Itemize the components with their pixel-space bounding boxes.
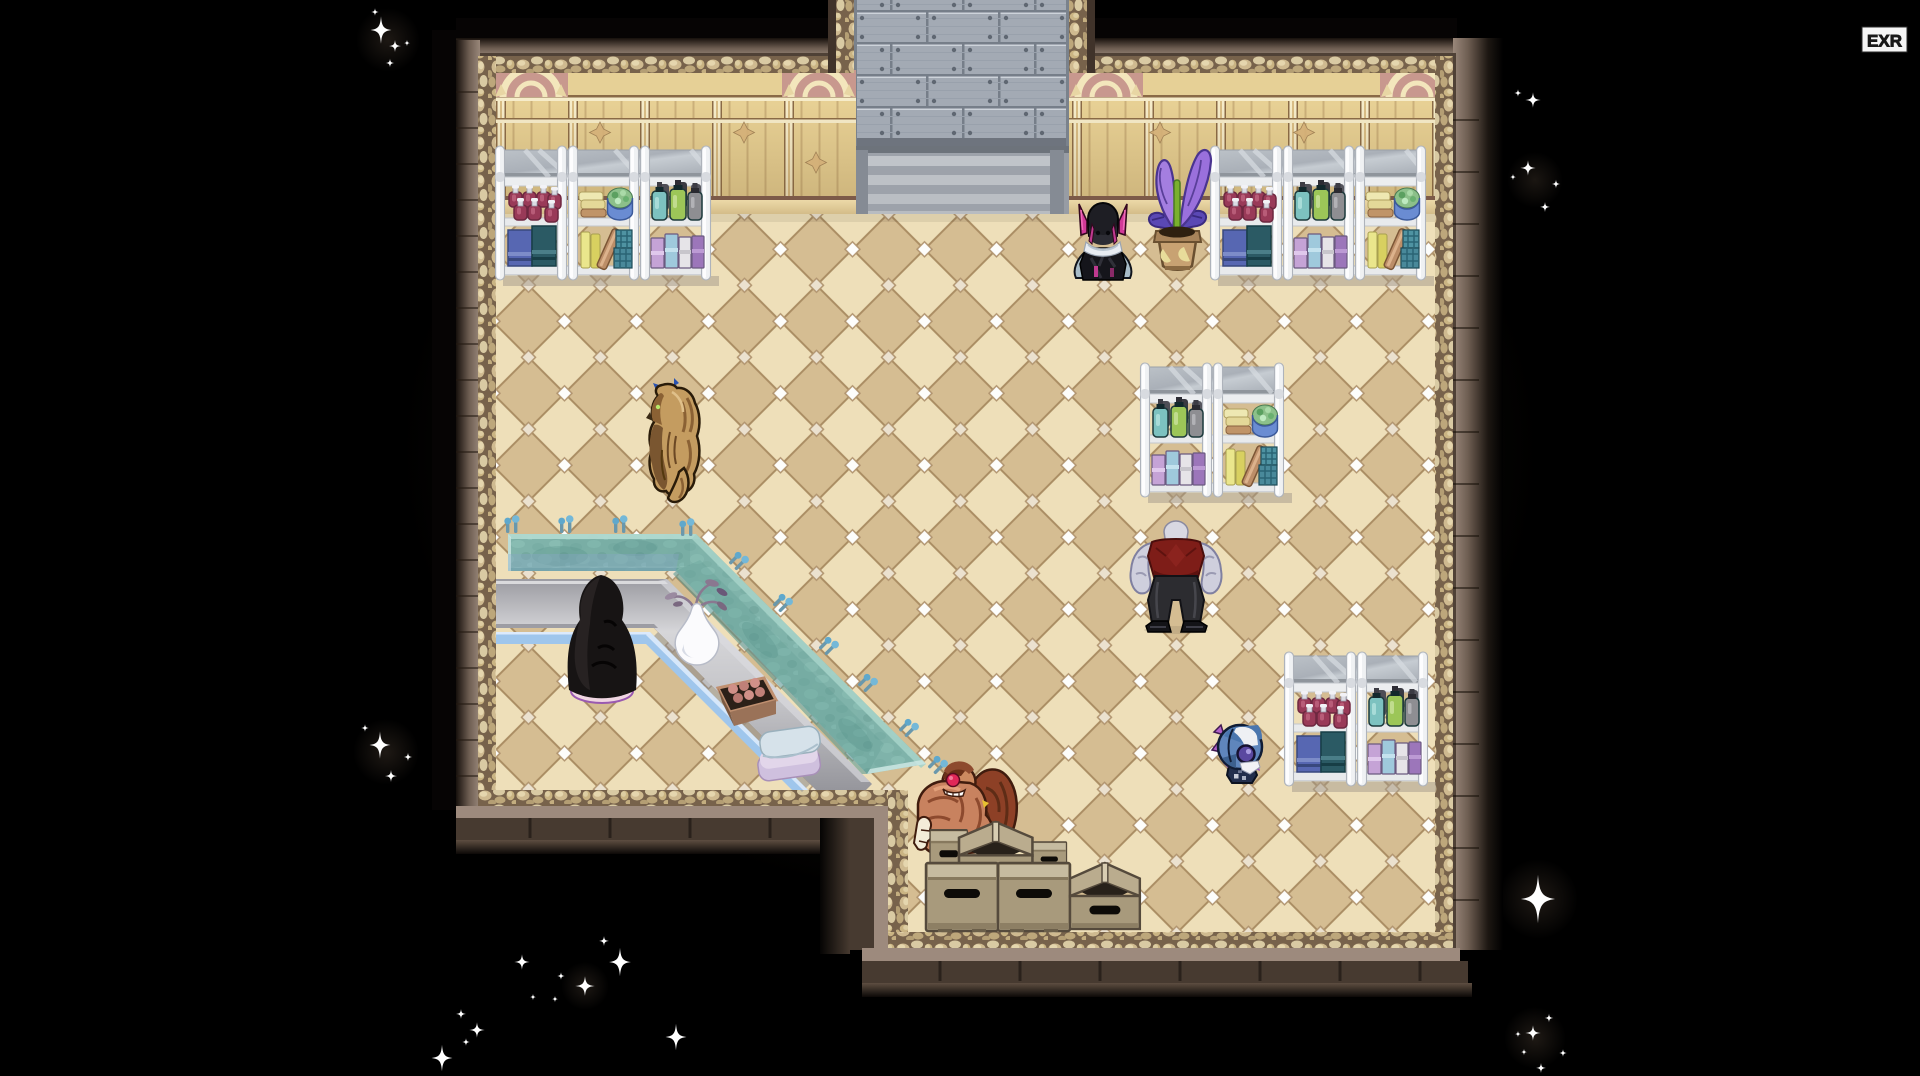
svg-text:EXR: EXR (1867, 32, 1902, 51)
